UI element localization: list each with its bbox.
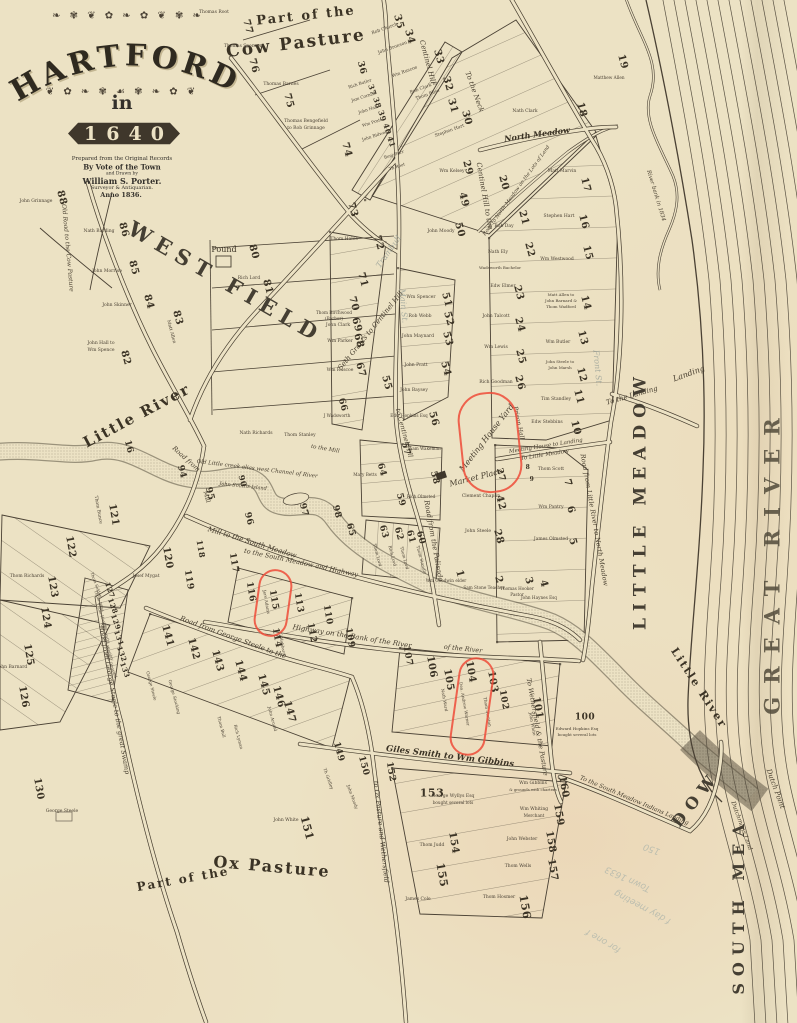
owner-name: Wm Pratt [362, 118, 383, 128]
parcel-number: 116 [244, 581, 256, 603]
parcel-number: 31 [445, 97, 459, 114]
parcel-number: 142 [185, 637, 200, 661]
parcel-number: 22 [522, 241, 536, 258]
parcel-number: 13 [575, 329, 589, 346]
parcel-number: 33 [431, 48, 445, 65]
owner-name: Sam Wakeman [409, 447, 440, 451]
parcel-number: 49 [456, 191, 470, 208]
owner-name: John Marsh [548, 366, 571, 370]
parcel-number: 15 [580, 244, 594, 261]
owner-name: Th Gridley [322, 768, 334, 790]
owner-name: John Moody [427, 230, 454, 235]
parcel-number: 7 [561, 478, 573, 488]
parcel-number: 112 [305, 622, 317, 644]
parcel-number: 3 [522, 576, 534, 586]
owner-name: Thom Lord [399, 546, 409, 570]
owner-name: Wm Spence [87, 349, 114, 354]
parcel-number: 94 [175, 464, 187, 479]
owner-name: Thom Richards [10, 575, 45, 580]
parcel-number: 17 [578, 176, 592, 193]
parcel-number: 71 [355, 271, 369, 288]
parcel-number: 61 [404, 529, 416, 544]
owner-name: Thom Hosmer [483, 896, 515, 901]
parcel-number: 106 [424, 655, 438, 679]
highlight-ellipse [455, 389, 525, 496]
parcel-number: 76 [246, 57, 260, 74]
parcel-number: 149 [331, 741, 345, 763]
road-label: to Ox Pasture and Wethersfield [372, 781, 389, 884]
parcel-number: 118 [195, 539, 206, 558]
owner-name: Wm Butler [546, 341, 571, 346]
road-label: Dutch Point [765, 768, 786, 810]
parcel-number: 8 [526, 465, 531, 471]
owner-name: John Barnard & [545, 299, 577, 303]
parcel-number: 126 [16, 685, 30, 709]
parcel-number: 23 [511, 284, 525, 301]
owner-name: Thom Stanley [284, 434, 315, 439]
owner-name: Thomas Root [199, 11, 229, 16]
owner-name: Thom Scott [538, 468, 564, 473]
owner-name: Thom Birchwood [316, 311, 352, 315]
owner-name: George Steele [145, 671, 157, 701]
owner-name: Thom Judd [420, 844, 445, 849]
owner-name: Rich Lyman [233, 724, 244, 749]
owner-name: Wadsworth Bachelor [479, 266, 521, 270]
parcel-number: 90 [238, 474, 249, 488]
owner-name: Stephen Hart [544, 215, 575, 220]
parcel-number: 100 [575, 714, 595, 723]
owner-name: Wm Goodwin elder [426, 579, 467, 583]
parcel-number: 55 [379, 374, 393, 391]
parcel-number: 86 [116, 221, 130, 238]
owner-name: John Talcott [482, 315, 509, 320]
parcel-number: 157 [545, 858, 559, 882]
parcel-number: 2 [492, 575, 504, 585]
hartford-1640-map: ❧ ✾ ❦ ✿ ❧ ✿ ❦ ✾ ❧ HARTFORD HARTFORD ❦ ✿ … [0, 0, 797, 1023]
parcel-number: 80 [246, 243, 260, 260]
parcel-number: 62 [392, 526, 404, 541]
parcel-number: 107 [401, 645, 413, 667]
owner-name: Wm Westwood [540, 258, 574, 263]
area-label: Little River [669, 646, 729, 730]
parcel-number: 97 [297, 502, 309, 517]
parcel-number: 63 [377, 524, 389, 539]
owner-name: Thom Wadford [546, 305, 576, 309]
parcel-number: 154 [446, 831, 460, 855]
owner-name: Benj Burr [384, 150, 405, 160]
owner-name: Matthew Allen [593, 76, 624, 80]
parcel-number: 150 [356, 755, 370, 777]
owner-name: Josef Mygat [132, 575, 159, 580]
owner-name: Thom Bunce [92, 496, 101, 525]
parcel-number: 69 [349, 316, 363, 333]
owner-name: Sam Stone Teacher [463, 586, 504, 590]
parcel-number: 145 [255, 673, 270, 697]
owner-name: J Wadsworth [324, 414, 351, 418]
parcel-number: 143 [209, 649, 224, 673]
area-label: Part of the [256, 4, 357, 27]
parcel-number: 57 [399, 441, 411, 456]
owner-name: Edw Stebbins [531, 421, 562, 426]
owner-name: Wm Parker [327, 340, 353, 345]
parcel-number: 14 [578, 294, 592, 311]
owner-name: John Steele to [546, 360, 574, 364]
owner-name: John Moody [346, 784, 359, 809]
owner-name: Wm Ruscoe [327, 369, 354, 374]
owner-name: John Bronson [378, 42, 408, 57]
owner-name: Rob Day [494, 225, 513, 230]
owner-name: Stephen Hart [435, 125, 466, 140]
parcel-number: 98 [330, 504, 342, 519]
owner-name: Rich Lord [387, 545, 396, 566]
parcel-number: 110 [321, 604, 333, 626]
owner-name: Wm Kelsey [439, 170, 464, 175]
owner-name: John Webster [507, 838, 537, 843]
area-label: Little River [81, 381, 193, 450]
owner-name: Mary Betts [353, 473, 377, 477]
road-label: North Meadow [504, 125, 571, 142]
parcel-number: 24 [512, 316, 526, 333]
parcel-number: 65 [344, 522, 356, 537]
area-label: WEST FIELD [125, 218, 327, 347]
road-label: Road to North Meadow on the Lots of Land [483, 145, 552, 237]
parcel-number: 59 [394, 492, 406, 507]
owner-name: John Grinnage [20, 200, 53, 205]
road-label: Old Little creek alias west Channel of R… [196, 460, 317, 480]
road-label: To the South Meadow Indians Landing [579, 775, 690, 826]
owner-name: Nath Richards [239, 432, 272, 437]
parcel-number: 66 [336, 397, 348, 412]
road-label: Road from Little River to North Meadow [579, 453, 609, 586]
parcel-number: 26 [512, 374, 526, 391]
owner-name: Nath Ward [440, 688, 448, 711]
parcel-number: 41 [386, 135, 397, 148]
owner-name: Thom Bull [216, 716, 226, 738]
owner-name: Thomas Spencer [224, 45, 262, 50]
road-label: Landing [672, 365, 706, 384]
owner-name: George Wyllys Esq [432, 795, 475, 800]
pencil-annotation: for one f [585, 927, 622, 954]
road-label: of the River [443, 644, 482, 655]
road-label: to the South Meadow and Highway [243, 548, 358, 579]
parcel-number: 77 [240, 18, 254, 35]
owner-name: Wm Gibbins [519, 782, 547, 787]
parcel-number: 25 [513, 348, 527, 365]
parcel-number: 88 [54, 189, 68, 206]
road-label: to the Mill [310, 445, 339, 455]
owner-name: John Haynes Esq [521, 596, 557, 600]
owner-name: Thom Standly [415, 545, 427, 575]
owner-name: Rich Goodman [479, 381, 512, 386]
parcel-number: 147 [281, 700, 296, 724]
owner-name: Merchant [524, 814, 545, 818]
owner-name: Edward Hopkins Esq [556, 727, 599, 731]
owner-name: George Steele [46, 810, 78, 815]
parcel-number: 113 [292, 592, 304, 614]
owner-name: John Steele [465, 530, 491, 535]
owner-name: Thom Hales [330, 238, 357, 243]
owner-name: Matt Allen to [548, 293, 575, 297]
parcel-number: 141 [159, 624, 174, 648]
owner-name: John Baysey [400, 389, 428, 394]
parcel-number: 83 [170, 309, 184, 326]
parcel-number: 158 [543, 830, 557, 854]
parcel-number: 85 [126, 259, 140, 276]
area-label: LITTLE MEADOW [633, 370, 650, 630]
parcel-number: 144 [232, 659, 247, 683]
area-label: Ox Pasture [213, 854, 332, 880]
parcel-number: 53 [440, 330, 454, 347]
owner-name: Rob Webb [408, 315, 431, 320]
owner-name: George Stocking [167, 679, 180, 714]
pencil-street-note: Front St. [591, 350, 602, 387]
road-label: To the Neck [463, 71, 484, 114]
road-label: Old Road to the Cow Pasture [60, 204, 74, 292]
parcel-number: 58 [428, 470, 440, 485]
map-label: Pound [211, 246, 236, 254]
parcel-number: 16 [122, 439, 134, 454]
owner-name: Nath Barding [84, 230, 115, 235]
owner-name: (Barber) [325, 317, 343, 321]
parcel-number: 51 [439, 291, 453, 308]
owner-name: John Morrise [92, 270, 122, 275]
parcel-number: 159 [551, 803, 565, 827]
owner-name: John Bidwell [362, 130, 389, 142]
parcel-number: 155 [434, 862, 449, 888]
parcel-number: 84 [141, 293, 155, 310]
parcel-number: 9 [530, 477, 535, 483]
parcel-number: 123 [45, 575, 59, 599]
parcel-number: 42 [493, 494, 507, 511]
owner-name: John Skinner [102, 304, 132, 309]
road-label: River bank in 1834 [645, 170, 666, 222]
parcel-number: 72 [371, 234, 385, 251]
parcel-number: 125 [21, 643, 35, 667]
owner-name: Th Root [388, 162, 405, 171]
owner-name: Thomas Barnes [263, 83, 298, 88]
parcel-number: 102 [497, 689, 509, 711]
parcel-number: 50 [452, 221, 466, 238]
owner-name: John Clark [326, 324, 350, 329]
parcel-number: 16 [576, 213, 590, 230]
parcel-number: 119 [182, 569, 194, 591]
owner-name: & grounds with charters [509, 788, 556, 792]
parcel-number: 75 [281, 92, 295, 109]
highlight-ellipse [447, 654, 496, 757]
parcel-number: 73 [345, 201, 359, 218]
parcel-number: 5 [566, 537, 578, 547]
parcel-number: 130 [31, 777, 45, 801]
owner-name: Wm Spencer [406, 296, 435, 301]
owner-name: Rich Olmsted [407, 495, 436, 499]
parcel-number: 133 [119, 661, 131, 679]
owner-name: Nath Ely [488, 251, 508, 256]
owner-name: John Pratt [404, 364, 427, 369]
owner-name: Rich Lord [238, 277, 260, 282]
parcel-number: 109 [343, 627, 355, 649]
parcel-number: 28 [491, 528, 505, 545]
parcel-number: 121 [106, 503, 120, 527]
owner-name: to Rob Grinnage [287, 127, 325, 132]
owner-name: James Cole [405, 898, 430, 903]
pencil-annotation: 150 [642, 841, 661, 855]
parcel-number: 67 [353, 361, 367, 378]
parcel-number: 151 [299, 815, 316, 841]
owner-name: bought several lots [558, 733, 597, 737]
pencil-annotation: Town 1633 [604, 864, 652, 893]
owner-name: Thom Lord [372, 543, 382, 567]
parcel-number: 21 [516, 209, 530, 226]
parcel-number: 10 [568, 419, 582, 436]
owner-name: Wm Lewis [484, 346, 508, 351]
owner-name: John Arnold [267, 706, 278, 731]
parcel-number: 156 [517, 894, 532, 920]
parcel-number: 124 [38, 606, 52, 630]
owner-name: John Hall [358, 105, 378, 115]
parcel-number: 74 [339, 141, 353, 158]
owner-name: John White [273, 819, 298, 824]
owner-name: Wm Ruscoe [392, 66, 419, 79]
parcel-number: 96 [242, 511, 254, 526]
pencil-street-note: Main St. [398, 288, 409, 323]
parcel-number: 20 [496, 174, 510, 191]
owner-name: Edw Hopkins Esq [390, 414, 427, 418]
owner-name: Nath Clark [512, 110, 537, 115]
parcel-number: 52 [441, 310, 455, 327]
road-label: To Wethersfield & the Pasture [525, 678, 549, 777]
owner-name: Tim Standley [541, 398, 571, 403]
parcel-number: 122 [63, 535, 77, 559]
parcel-number: 36 [355, 60, 367, 75]
road-label: Giles Smith to Wm Gibbins [386, 745, 515, 769]
parcel-number: 12 [574, 366, 588, 383]
parcel-number: 11 [571, 388, 585, 405]
parcel-number: 152 [384, 761, 396, 783]
area-label: GREAT RIVER [762, 405, 783, 715]
parcel-number: 54 [438, 360, 452, 377]
owner-name: Matt Marvin [548, 170, 577, 175]
owner-name: bought several lots [433, 801, 474, 805]
pencil-annotation: f day meeting [613, 887, 673, 924]
parcel-number: 117 [227, 552, 239, 574]
parcel-number: 18 [574, 101, 588, 118]
highlight-ellipse [251, 567, 294, 639]
parcel-number: 120 [160, 546, 174, 570]
parcel-number: 56 [426, 410, 440, 427]
owner-name: Thomas Bengefield [284, 120, 328, 125]
parcel-number: 6 [564, 505, 576, 515]
parcel-number: 19 [615, 53, 629, 70]
parcel-number: 82 [118, 349, 132, 366]
parcel-number: 4 [537, 579, 549, 589]
owner-name: Thomas Hooker [500, 587, 534, 591]
owner-name: Wm Pantry [538, 506, 563, 511]
owner-name: John Barnard [0, 666, 27, 671]
owner-name: James Olmsted [534, 538, 568, 543]
parcel-number: 160 [556, 775, 570, 799]
owner-name: Thom Wells [505, 865, 531, 870]
owner-name: John Hall to [87, 342, 114, 347]
owner-name: Wm Whiting [520, 808, 548, 813]
label-layer: Part of theCow PastureWEST FIELDLittle R… [0, 0, 797, 1023]
owner-name: John Maynard [402, 335, 434, 340]
parcel-number: 32 [440, 75, 454, 92]
